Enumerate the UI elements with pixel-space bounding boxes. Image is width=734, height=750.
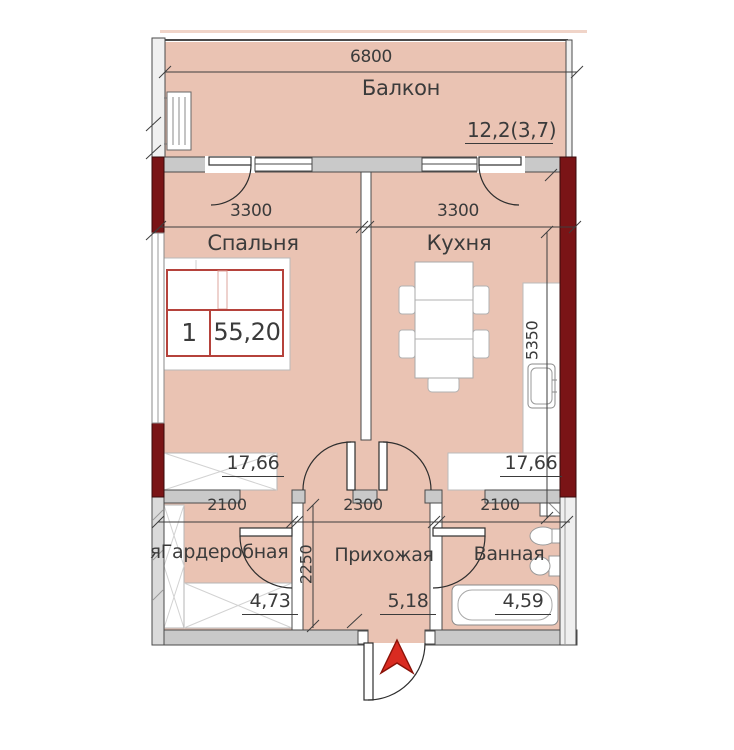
bedroom-window [152, 233, 164, 423]
dim-bathroom-width: 2100 [460, 497, 540, 514]
dim-kitchen-width: 3300 [418, 203, 498, 221]
unit-total-area: 55,20 [212, 320, 282, 345]
dim-balcony-width: 6800 [331, 49, 411, 67]
hallway-label: Прихожая [324, 546, 444, 566]
radiator [164, 92, 191, 150]
balcony-label: Балкон [349, 77, 453, 99]
dim-hallway-depth: 2250 [299, 529, 316, 599]
kitchen-area: 17,66 [500, 454, 562, 477]
unit-number: 1 [168, 320, 210, 346]
bedroom-area: 17,66 [222, 454, 284, 477]
floor-plan-page: 6800 Балкон 12,2(3,7) 3300 3300 Спальня … [0, 0, 734, 750]
dim-kitchen-depth: 5350 [525, 305, 542, 375]
dim-hallway-width: 2300 [323, 497, 403, 514]
floor-plan-drawing [0, 0, 734, 750]
hallway-area: 5,18 [380, 592, 436, 615]
bathroom-area: 4,59 [495, 592, 551, 615]
bathroom-label: Ванная [449, 545, 569, 565]
dim-bedroom-width: 3300 [211, 203, 291, 221]
dim-wardrobe-width: 2100 [187, 497, 267, 514]
entrance-arrow-icon [381, 640, 413, 673]
wardrobe-label: яГардеробная [147, 543, 291, 563]
wardrobe-area: 4,73 [242, 592, 298, 615]
bedroom-label: Спальня [193, 232, 313, 254]
kitchen-label: Кухня [399, 232, 519, 254]
balcony-area: 12,2(3,7) [465, 120, 553, 144]
upper-floor-trace [160, 30, 587, 33]
